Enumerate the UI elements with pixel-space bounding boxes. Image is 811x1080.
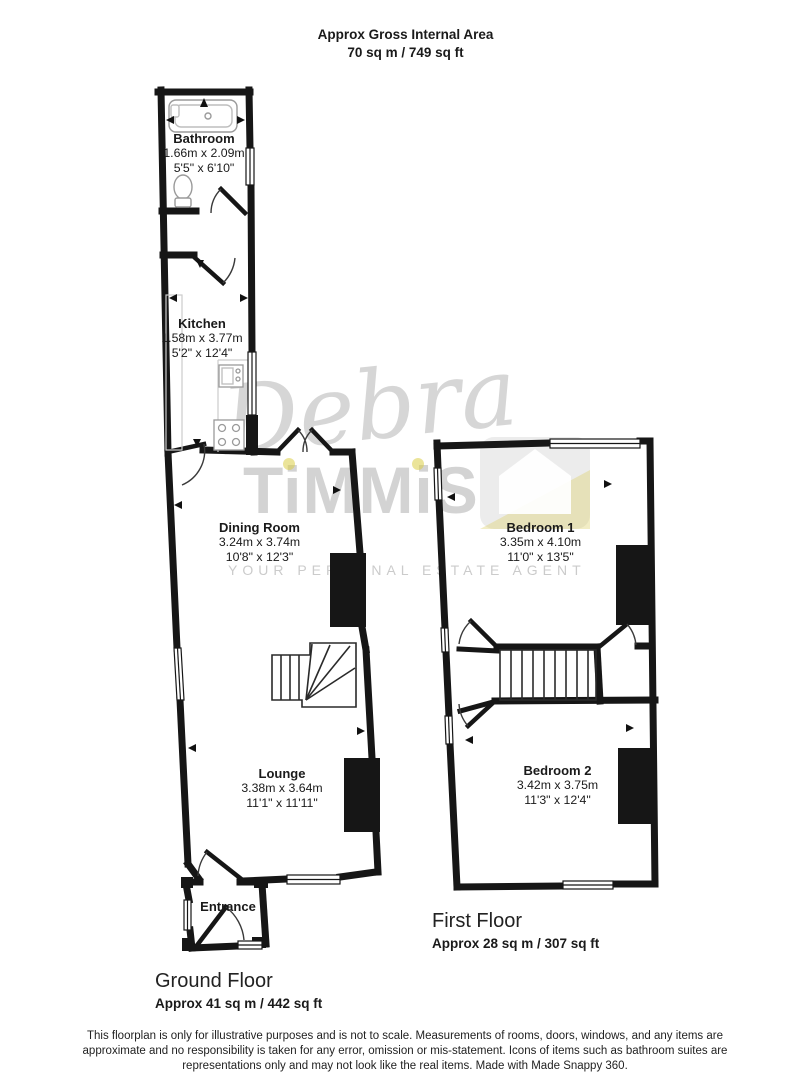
room-name: Bedroom 2 [475, 763, 640, 778]
first-floor-door-leaves [468, 621, 627, 726]
kitchen-sink-icon [219, 365, 243, 387]
room-name: Kitchen [146, 316, 258, 331]
room-name: Entrance [183, 899, 273, 914]
room-metric: 1.66m x 2.09m [150, 146, 258, 161]
floor-name: Ground Floor [155, 970, 322, 993]
room-label-bedroom-1: Bedroom 1 3.35m x 4.10m 11'0" x 13'5" [458, 520, 623, 564]
ground-floor-door-arcs [182, 189, 312, 940]
room-name: Lounge [202, 766, 362, 781]
floorplan-canvas [0, 0, 811, 1080]
room-name: Bathroom [150, 131, 258, 146]
room-label-kitchen: Kitchen 1.58m x 3.77m 5'2" x 12'4" [146, 316, 258, 360]
room-imperial: 11'3" x 12'4" [475, 793, 640, 808]
room-metric: 3.35m x 4.10m [458, 535, 623, 550]
floor-name: First Floor [432, 910, 599, 933]
stove-icon [214, 420, 244, 450]
floorplan-page: Approx Gross Internal Area 70 sq m / 749… [0, 0, 811, 1080]
title-line2: 70 sq m / 749 sq ft [0, 44, 811, 62]
floor-area: Approx 41 sq m / 442 sq ft [155, 996, 322, 1011]
room-label-entrance: Entrance [183, 899, 273, 914]
room-imperial: 5'5" x 6'10" [150, 161, 258, 176]
toilet-icon [174, 175, 192, 207]
first-floor-caption: First Floor Approx 28 sq m / 307 sq ft [432, 910, 599, 951]
room-metric: 1.58m x 3.77m [146, 331, 258, 346]
page-title: Approx Gross Internal Area 70 sq m / 749… [0, 26, 811, 62]
room-label-bedroom-2: Bedroom 2 3.42m x 3.75m 11'3" x 12'4" [475, 763, 640, 807]
room-name: Dining Room [182, 520, 337, 535]
room-name: Bedroom 1 [458, 520, 623, 535]
room-metric: 3.42m x 3.75m [475, 778, 640, 793]
first-floor-windows [434, 439, 640, 889]
ground-floor-dim-arrows [166, 98, 365, 752]
room-label-lounge: Lounge 3.38m x 3.64m 11'1" x 11'11" [202, 766, 362, 810]
room-metric: 3.38m x 3.64m [202, 781, 362, 796]
ground-floor-caption: Ground Floor Approx 41 sq m / 442 sq ft [155, 970, 322, 1011]
room-imperial: 5'2" x 12'4" [146, 346, 258, 361]
disclaimer-text: This floorplan is only for illustrative … [70, 1029, 740, 1075]
floor-area: Approx 28 sq m / 307 sq ft [432, 936, 599, 951]
room-label-bathroom: Bathroom 1.66m x 2.09m 5'5" x 6'10" [150, 131, 258, 175]
room-imperial: 11'0" x 13'5" [458, 550, 623, 565]
first-floor-stairs [500, 650, 596, 700]
room-imperial: 11'1" x 11'11" [202, 796, 362, 811]
room-metric: 3.24m x 3.74m [182, 535, 337, 550]
room-label-dining-room: Dining Room 3.24m x 3.74m 10'8" x 12'3" [182, 520, 337, 564]
ground-floor-stairs [272, 643, 356, 707]
title-line1: Approx Gross Internal Area [0, 26, 811, 44]
room-imperial: 10'8" x 12'3" [182, 550, 337, 565]
